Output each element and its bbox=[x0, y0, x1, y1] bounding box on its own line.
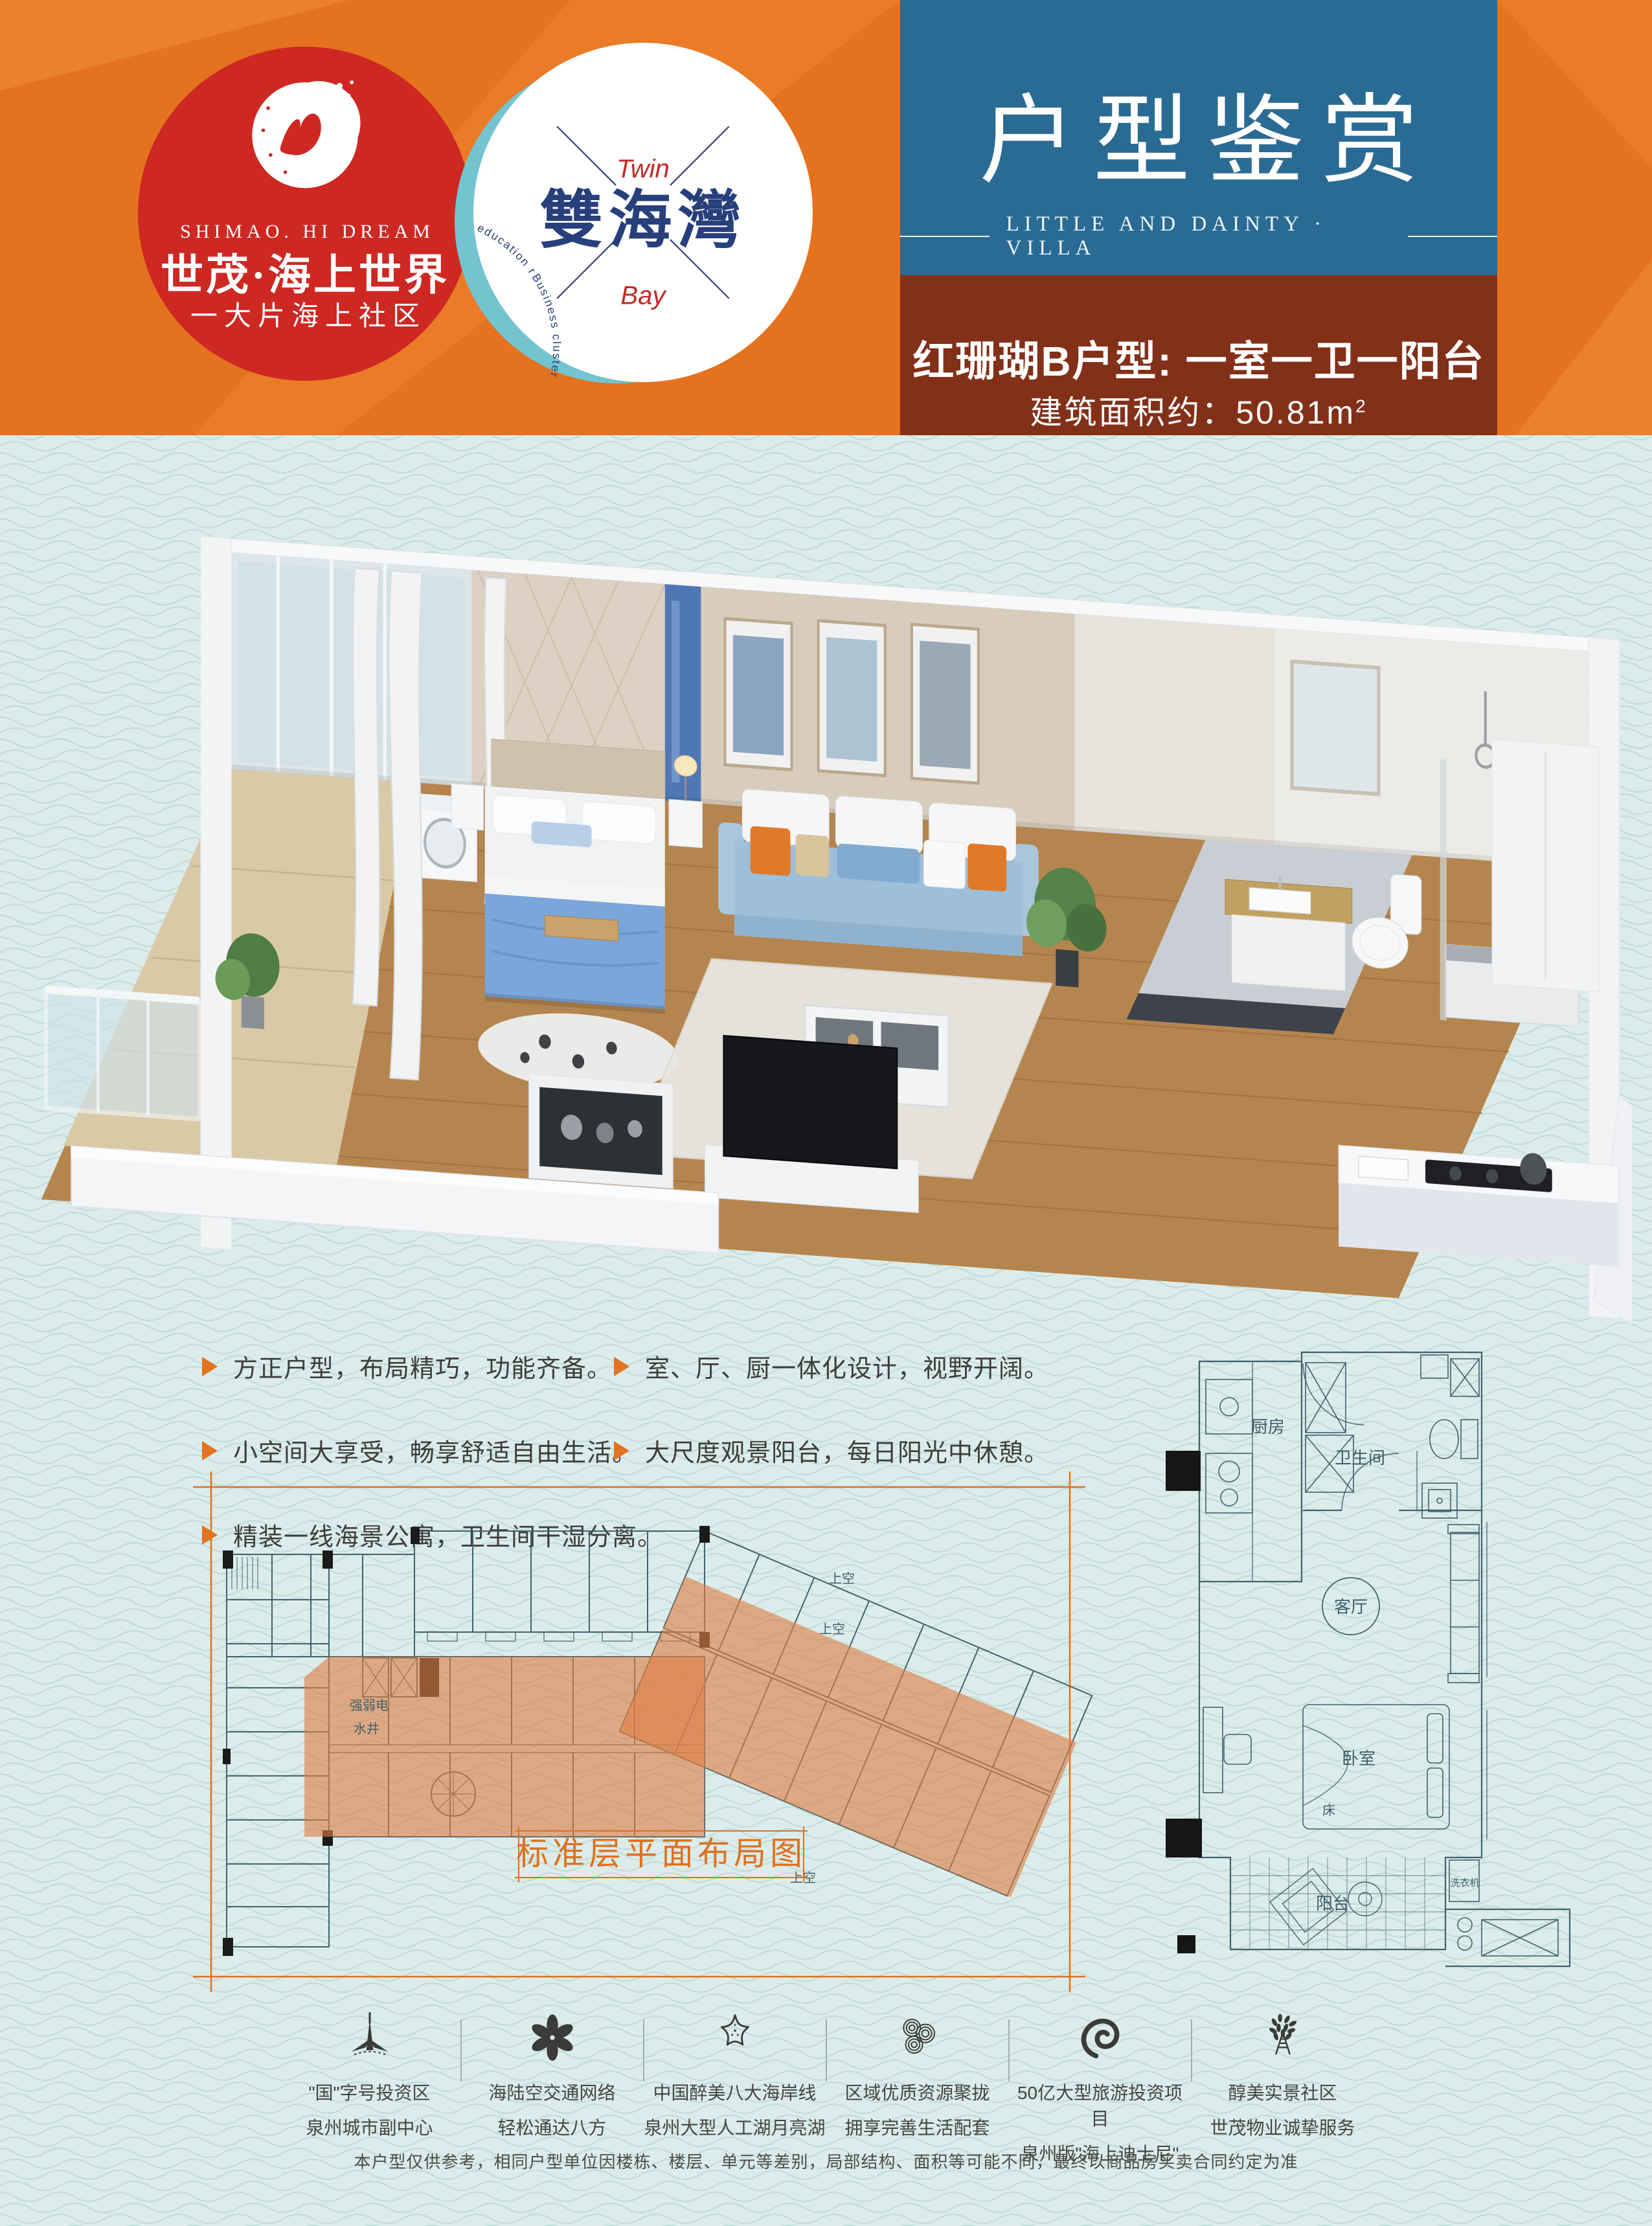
svg-text:卧室: 卧室 bbox=[1342, 1749, 1375, 1768]
unit-floor-plan: 厨房 卫生间 客厅 卧室 床 阳台 洗衣机 bbox=[1146, 1328, 1587, 1982]
sofa bbox=[718, 787, 1038, 957]
subtitle-rule-right bbox=[1408, 236, 1497, 237]
series-title-box: 户型鉴赏 LITTLE AND DAINTY · VILLA bbox=[900, 0, 1497, 275]
shimao-logo-tagline: 一大片海上社区 bbox=[138, 294, 472, 334]
starfish-icon bbox=[644, 1996, 826, 2063]
unit-plan-shafts bbox=[1166, 1451, 1202, 1953]
bed bbox=[485, 738, 665, 1014]
svg-text:卫生间: 卫生间 bbox=[1335, 1448, 1385, 1468]
subtitle-rule-left bbox=[900, 236, 990, 237]
balcony-glass-railing bbox=[46, 990, 199, 1119]
bullet-arrow-icon bbox=[202, 1357, 218, 1376]
feature-item: 室、厅、厨一体化设计，视野开阔。 bbox=[614, 1348, 1049, 1384]
nautilus-icon bbox=[1010, 1996, 1191, 2063]
poster: SHIMAO. HI DREAM 世茂·海上世界 一大片海上社区 Busines… bbox=[0, 0, 1652, 2226]
footer-selling-points: "国"字号投资区 泉州城市副中心 海陆空交通网络 轻松通达八方 bbox=[0, 1996, 1652, 2166]
storage-boxes bbox=[529, 1074, 673, 1188]
page-title: 户型鉴赏 bbox=[900, 62, 1497, 203]
subtitle-text: LITTLE AND DAINTY · VILLA bbox=[1006, 212, 1392, 260]
svg-text:上空: 上空 bbox=[829, 1571, 855, 1586]
footer-item: 醇美实景社区 世茂物业诚挚服务 bbox=[1192, 1996, 1374, 2140]
disclaimer-text: 本户型仅供参考，相同户型单位因楼栋、楼层、单元等差别，局部结构、面积等可能不同，… bbox=[0, 2149, 1652, 2173]
bathroom-mirror bbox=[1292, 661, 1379, 794]
unit-area: 建筑面积约：50.81m2 bbox=[900, 387, 1497, 433]
svg-text:上空: 上空 bbox=[819, 1622, 845, 1637]
orange-pillow bbox=[967, 843, 1006, 892]
svg-text:水井: 水井 bbox=[354, 1721, 379, 1736]
page-subtitle: LITTLE AND DAINTY · VILLA bbox=[900, 212, 1497, 260]
footer-item: 海陆空交通网络 轻松通达八方 bbox=[462, 1996, 643, 2140]
header-band: SHIMAO. HI DREAM 世茂·海上世界 一大片海上社区 Busines… bbox=[0, 0, 1652, 435]
standard-floor-plan: 强弱电 水井 上空 上空 上空 标准层平面布局图 bbox=[175, 1457, 1153, 2014]
footer-item: "国"字号投资区 泉州城市副中心 bbox=[279, 1996, 460, 2140]
svg-text:厨房: 厨房 bbox=[1251, 1417, 1285, 1437]
unit-type-title: 红珊瑚B户型: 一室一卫一阳台 bbox=[900, 328, 1497, 388]
whale-tail-icon bbox=[243, 71, 367, 194]
bullet-arrow-icon bbox=[614, 1357, 629, 1376]
feature-text: 室、厅、厨一体化设计，视野开阔。 bbox=[645, 1348, 1049, 1384]
footer-item: 50亿大型旅游投资项目 泉州版"海上迪士尼" bbox=[1010, 1996, 1191, 2166]
left-cut-wall bbox=[201, 536, 231, 1249]
unit-plan-labels: 厨房 卫生间 客厅 卧室 床 阳台 洗衣机 bbox=[1251, 1417, 1480, 1913]
twinbay-logo: Business cluster | Hotel cluster | Quanz… bbox=[473, 43, 813, 382]
orange-pillow bbox=[751, 826, 791, 876]
unit-plan-walls bbox=[1199, 1352, 1570, 1966]
shimao-logo-cn: 世茂·海上世界 bbox=[138, 240, 472, 302]
twinbay-top-word: Twin bbox=[617, 154, 670, 183]
tree-icon bbox=[1192, 1996, 1374, 2063]
shimao-logo: SHIMAO. HI DREAM 世茂·海上世界 一大片海上社区 bbox=[138, 47, 472, 381]
twinbay-seal: Business cluster | Hotel cluster | Quanz… bbox=[473, 43, 813, 382]
plan-caption: 标准层平面布局图 bbox=[516, 1835, 806, 1872]
footer-item: 区域优质资源聚拢 拥享完善生活配套 bbox=[827, 1996, 1008, 2140]
twinbay-bottom-word: Bay bbox=[620, 280, 667, 310]
unit-plan-fixtures bbox=[1203, 1355, 1558, 1956]
tv bbox=[705, 1034, 919, 1212]
svg-text:客厅: 客厅 bbox=[1334, 1597, 1368, 1617]
shimao-logo-en: SHIMAO. HI DREAM bbox=[138, 221, 472, 243]
svg-text:床: 床 bbox=[1322, 1803, 1335, 1818]
svg-text:阳台: 阳台 bbox=[1316, 1894, 1350, 1913]
bathroom-vanity bbox=[1225, 872, 1352, 992]
apartment-3d-render bbox=[32, 479, 1632, 1328]
svg-text:洗衣机: 洗衣机 bbox=[1450, 1878, 1479, 1889]
feature-text: 方正户型，布局精巧，功能齐备。 bbox=[233, 1348, 612, 1384]
unit-type-box: 红珊瑚B户型: 一室一卫一阳台 建筑面积约：50.81m2 bbox=[900, 275, 1497, 435]
coral-icon bbox=[827, 1996, 1008, 2063]
wall-art-frames bbox=[725, 611, 979, 783]
svg-text:强弱电: 强弱电 bbox=[350, 1698, 389, 1713]
footer-item: 中国醉美八大海岸线 泉州大型人工湖月亮湖 bbox=[644, 1996, 826, 2140]
feature-item: 方正户型，布局精巧，功能齐备。 bbox=[202, 1348, 612, 1384]
flower-icon bbox=[462, 1996, 643, 2063]
twinbay-name: 雙海灣 bbox=[539, 184, 747, 255]
tower-icon bbox=[279, 1996, 460, 2063]
